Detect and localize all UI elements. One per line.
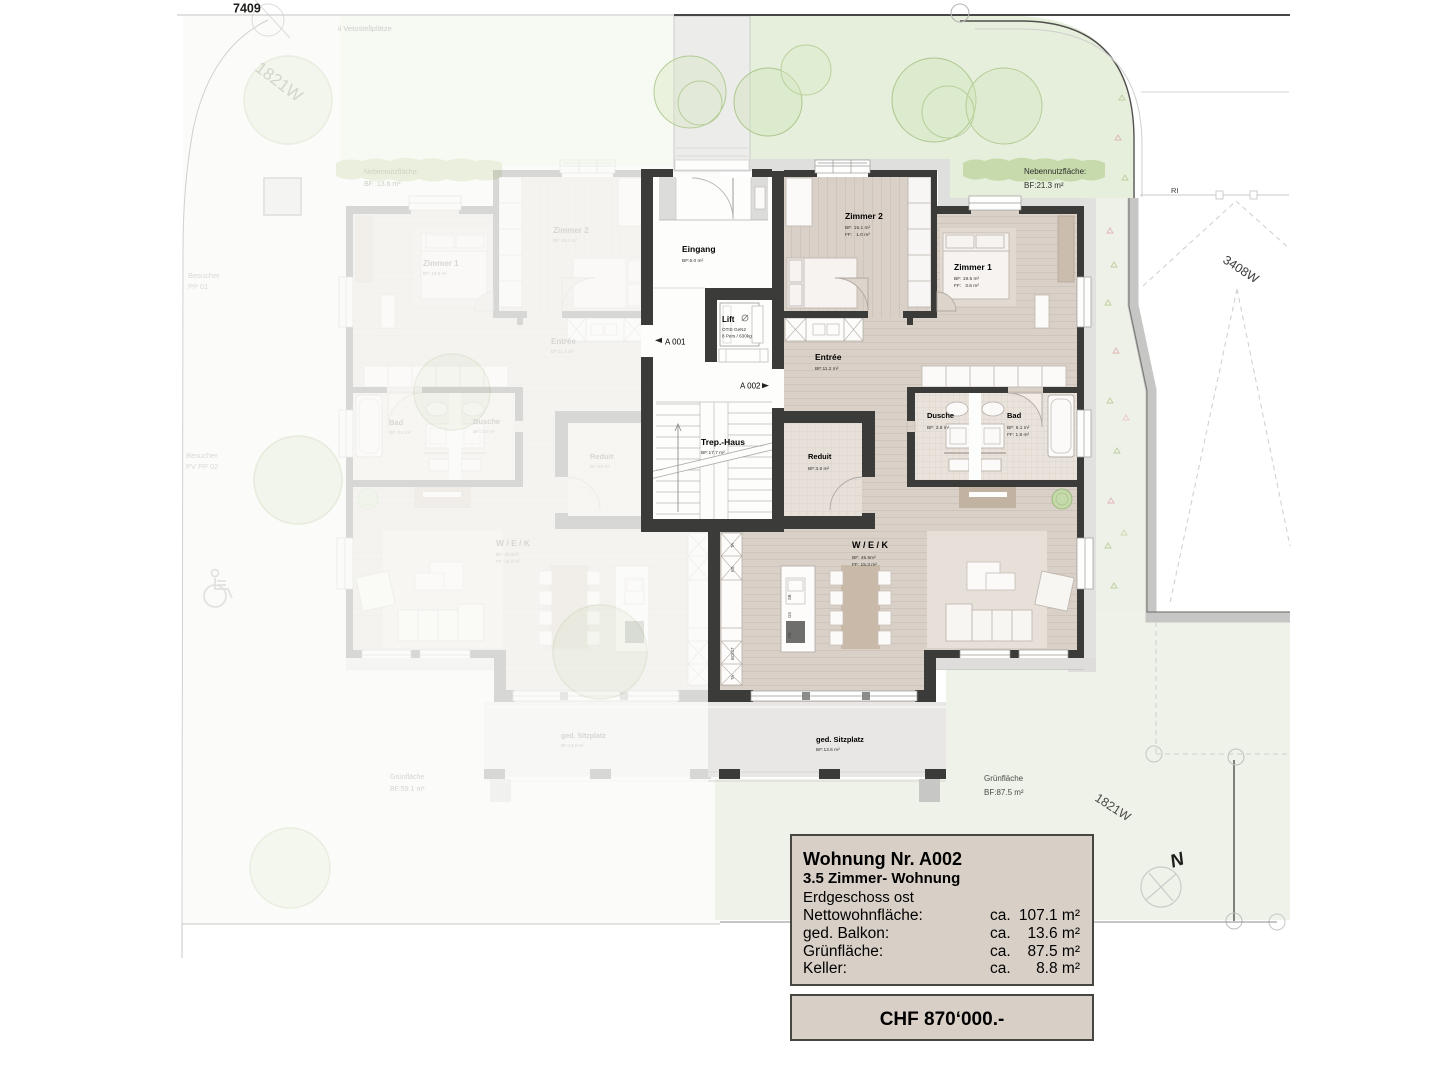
svg-text:Dusche: Dusche [927,411,954,420]
svg-text:BF: 6.1 m²: BF: 6.1 m² [389,430,411,435]
svg-text:BO/ST: BO/ST [730,647,735,660]
svg-text:W / E / K: W / E / K [852,540,889,550]
svg-text:FF: 1.0 m²: FF: 1.0 m² [845,232,870,238]
svg-text:Dusche: Dusche [473,417,500,426]
svg-text:8.8 m²: 8.8 m² [1036,960,1080,977]
svg-text:SB: SB [787,594,792,600]
svg-text:ged. Sitzplatz: ged. Sitzplatz [561,733,606,740]
svg-text:ii Vetostellplätze: ii Vetostellplätze [338,24,392,33]
svg-text:BF: 3.8 m²: BF: 3.8 m² [927,425,950,431]
svg-text:Besucher: Besucher [186,451,218,460]
svg-text:BF: 19.5 m²: BF: 19.5 m² [954,276,979,282]
svg-text:BF: 19.5 m²: BF: 19.5 m² [423,271,447,276]
svg-text:Erdgeschoss ost: Erdgeschoss ost [803,889,915,906]
svg-text:FF: 1.8 m²: FF: 1.8 m² [1007,432,1030,438]
svg-text:ca.: ca. [990,907,1011,924]
svg-text:BF:21.3 m²: BF:21.3 m² [1024,181,1064,190]
svg-text:Zimmer 2: Zimmer 2 [553,226,589,235]
svg-text:Entrée: Entrée [815,352,842,362]
svg-text:BF: 6.1 m²: BF: 6.1 m² [1007,425,1030,431]
svg-text:Nebennutzfläche:: Nebennutzfläche: [364,169,419,176]
svg-text:FF: 15.3 m²: FF: 15.3 m² [852,562,877,568]
svg-text:ged. Balkon:: ged. Balkon: [803,925,889,942]
svg-text:107.1 m²: 107.1 m² [1019,907,1080,924]
svg-text:BF:87.5 m²: BF:87.5 m² [984,788,1024,797]
svg-text:TA: TA [730,675,735,680]
svg-text:Bad: Bad [389,418,404,427]
svg-text:Zimmer 1: Zimmer 1 [954,262,992,272]
svg-text:BF: 45.6m²: BF: 45.6m² [496,552,519,557]
svg-text:Besucher: Besucher [188,271,220,280]
svg-text:Keller:: Keller: [803,960,847,977]
svg-text:BF:3.6 m²: BF:3.6 m² [808,466,829,472]
svg-text:Entrée: Entrée [551,337,576,346]
svg-text:PV PP 02: PV PP 02 [186,462,218,471]
svg-text:BF:11.2 m²: BF:11.2 m² [551,349,574,354]
svg-text:A 002: A 002 [740,382,761,391]
svg-text:A 001: A 001 [665,338,686,347]
svg-text:ca.: ca. [990,943,1011,960]
svg-text:Grünfläche: Grünfläche [984,774,1024,783]
svg-text:BF:13.6 m²: BF:13.6 m² [816,747,840,753]
svg-text:87.5 m²: 87.5 m² [1027,943,1080,960]
svg-text:Zimmer 1: Zimmer 1 [423,259,459,268]
svg-text:Lift: Lift [722,315,735,324]
svg-text:Wohnung Nr. A002: Wohnung Nr. A002 [803,849,962,869]
svg-text:Nettowohnfläche:: Nettowohnfläche: [803,907,923,924]
svg-text:Reduit: Reduit [590,452,614,461]
svg-text:HE: HE [787,632,792,638]
svg-text:BF: 15.1 m²: BF: 15.1 m² [845,225,870,231]
svg-text:ged. Sitzplatz: ged. Sitzplatz [816,735,864,744]
svg-text:Reduit: Reduit [808,452,832,461]
svg-text:ca.: ca. [990,925,1011,942]
svg-text:W / E / K: W / E / K [496,538,531,548]
svg-text:BF: 3.8 m²: BF: 3.8 m² [473,429,495,434]
svg-text:BF:6.0 m²: BF:6.0 m² [682,258,703,264]
svg-text:Bad: Bad [1007,411,1022,420]
svg-text:Eingang: Eingang [682,244,716,254]
svg-text:BF:17.7 m²: BF:17.7 m² [701,450,725,456]
svg-text:Grünfläche:: Grünfläche: [803,943,883,960]
svg-text:Trep.-Haus: Trep.-Haus [701,437,745,447]
svg-text:BF: 45.6m²: BF: 45.6m² [852,555,876,561]
svg-text:3.5 Zimmer- Wohnung: 3.5 Zimmer- Wohnung [803,870,960,887]
svg-text:FF: 3.6 m²: FF: 3.6 m² [954,283,979,289]
svg-text:BF :13.6 m²: BF :13.6 m² [364,181,401,188]
svg-text:BF:11.2 m²: BF:11.2 m² [815,366,839,372]
svg-text:OTIS GeN2: OTIS GeN2 [722,327,746,332]
svg-text:TA: TA [730,543,735,548]
svg-text:ca.: ca. [990,960,1011,977]
svg-text:Nebennutzfläche:: Nebennutzfläche: [1024,167,1086,176]
svg-text:BF:13.6 m²: BF:13.6 m² [561,743,584,748]
svg-text:Zimmer 2: Zimmer 2 [845,211,883,221]
svg-text:BF:59.1 m²: BF:59.1 m² [390,786,425,793]
svg-text:BF: 15.1 m²: BF: 15.1 m² [553,238,577,243]
svg-text:13.6 m²: 13.6 m² [1027,925,1080,942]
svg-text:BF:3.6 m²: BF:3.6 m² [590,464,611,469]
svg-text:GS: GS [787,612,792,618]
svg-text:7409: 7409 [233,2,261,16]
svg-text:8 Pers / 630kg: 8 Pers / 630kg [722,334,752,339]
svg-text:RI: RI [1171,186,1179,195]
svg-text:Grünfläche: Grünfläche [390,774,424,781]
svg-text:FF: 15.3 m²: FF: 15.3 m² [496,559,520,564]
svg-text:CHF 870‘000.-: CHF 870‘000.- [880,1009,1005,1030]
svg-text:KS: KS [730,566,735,572]
svg-text:PP 01: PP 01 [188,282,208,291]
